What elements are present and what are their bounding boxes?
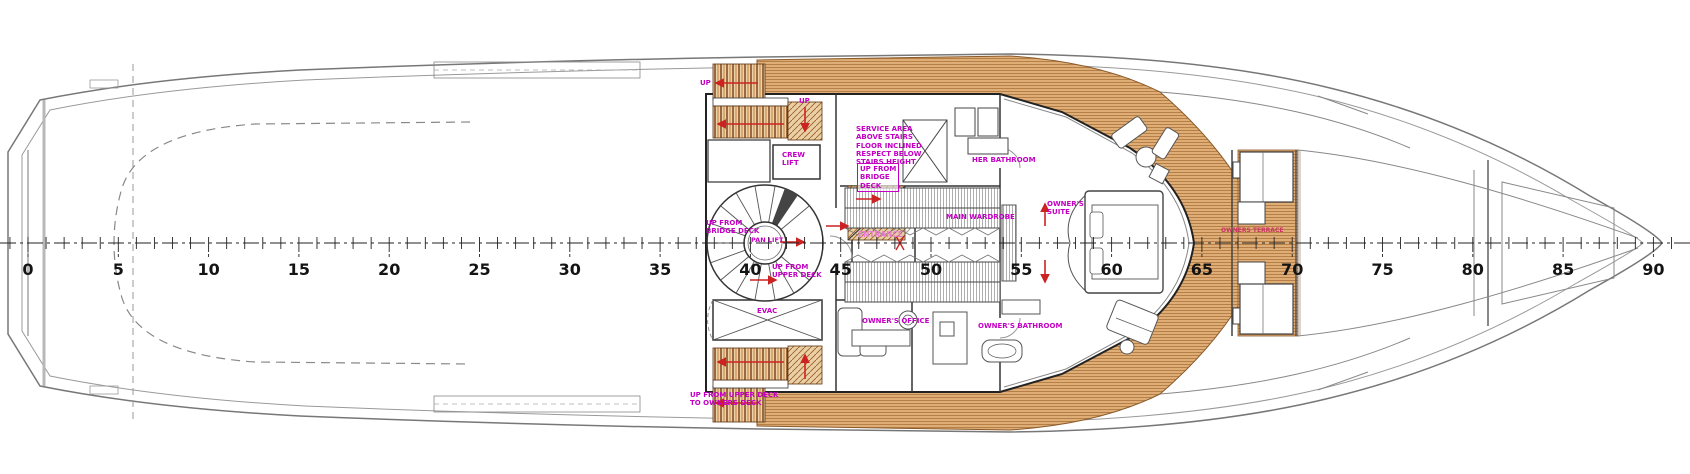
label-her-bathroom: HER BATHROOM [972,156,1036,164]
label-up-forward-stairs: UP [700,79,711,87]
frame-number: 5 [113,260,124,279]
label-owners-suite: OWNER'S SUITE [1047,200,1084,217]
evac-hatch [708,300,822,340]
deck-plan-drawing [0,0,1690,474]
frame-number: 50 [920,260,942,279]
frame-number: 40 [739,260,761,279]
frame-number: 35 [649,260,671,279]
frame-number: 15 [288,260,310,279]
frame-number: 65 [1191,260,1213,279]
label-pan-lift: PAN LIFT [751,237,783,245]
frame-number: 75 [1371,260,1393,279]
label-service-note: SERVICE AREA ABOVE STAIRS FLOOR INCLINED… [856,125,922,166]
frame-number: 30 [559,260,581,279]
frame-number: 55 [1010,260,1032,279]
frame-number: 80 [1462,260,1484,279]
label-owners-office: OWNER'S OFFICE [862,317,929,325]
frame-number: 20 [378,260,400,279]
label-up-winder: UP [799,97,810,105]
label-main-wardrobe: MAIN WARDROBE [946,213,1015,221]
frame-number: 45 [830,260,852,279]
label-owners-bathroom: OWNER'S BATHROOM [978,322,1062,330]
label-entrance: ENTRANCE [858,231,903,240]
label-up-from-bridge-deck: UP FROM BRIDGE DECK [706,219,759,236]
frame-number: 0 [22,260,33,279]
deck-plan: UP UP SERVICE AREA ABOVE STAIRS FLOOR IN… [0,0,1690,474]
label-crew-lift: CREW LIFT [782,151,805,168]
frame-number: 25 [468,260,490,279]
frame-number: 60 [1100,260,1122,279]
label-up-from-bridge-boxed: UP FROM BRIDGE DECK [857,163,899,192]
frame-number: 10 [197,260,219,279]
label-owners-terrace: OWNERS TERRACE [1221,227,1283,234]
frame-number: 70 [1281,260,1303,279]
frame-number: 90 [1642,260,1664,279]
label-evac: EVAC [757,307,777,315]
frame-number: 85 [1552,260,1574,279]
label-up-from-upper-deck: UP FROM UPPER DECK [772,263,822,280]
label-up-aft-stairs: UP FROM UPPER DECK TO OWNERS DECK [690,391,778,408]
